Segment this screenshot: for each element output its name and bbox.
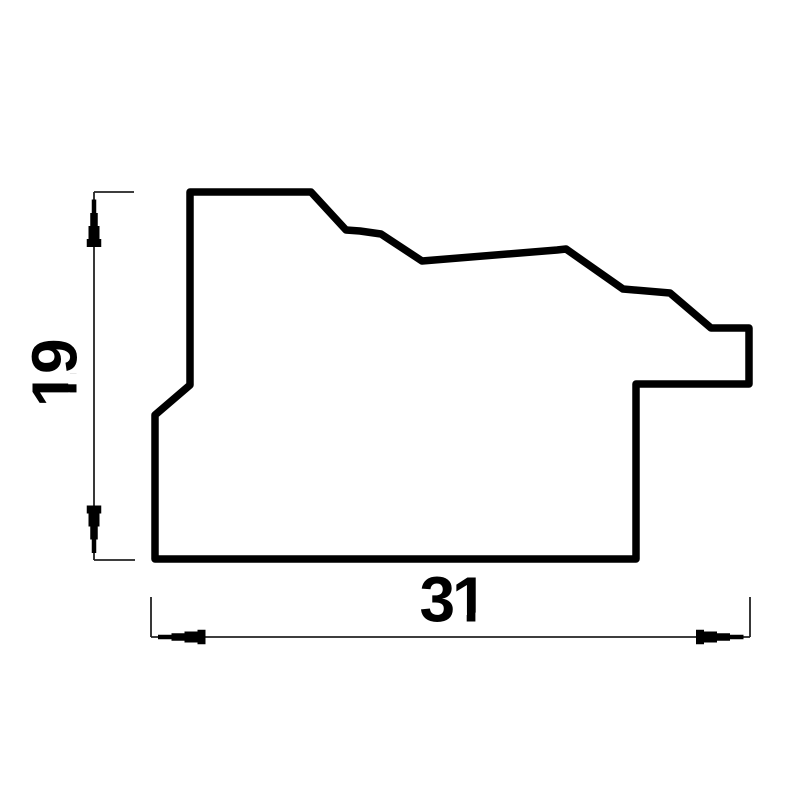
svg-text:9: 9 [19,338,91,374]
svg-text:1: 1 [19,372,91,408]
svg-text:3: 3 [420,564,456,636]
svg-text:1: 1 [452,564,488,636]
